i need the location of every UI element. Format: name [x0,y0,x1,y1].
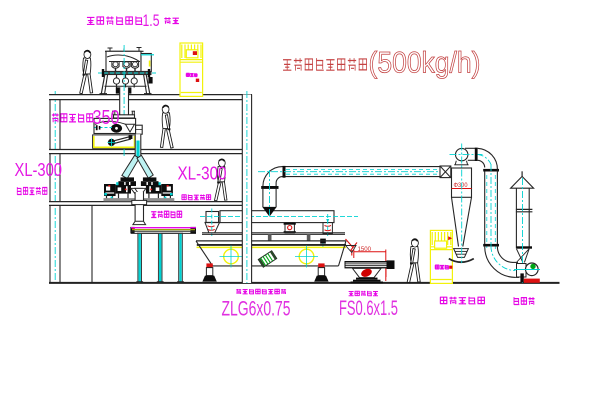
svg-text:350: 350 [93,107,120,129]
svg-text:Φ300: Φ300 [454,182,468,189]
svg-text:XL-300: XL-300 [178,163,227,184]
svg-text:1.5: 1.5 [143,11,160,30]
svg-text:FS0.6x1.5: FS0.6x1.5 [339,297,398,320]
svg-text:ZLG6x0.75: ZLG6x0.75 [222,298,291,321]
svg-text:(500kg/h): (500kg/h) [369,47,481,80]
svg-text:XL-300: XL-300 [15,159,63,180]
svg-text:1500: 1500 [358,246,372,253]
